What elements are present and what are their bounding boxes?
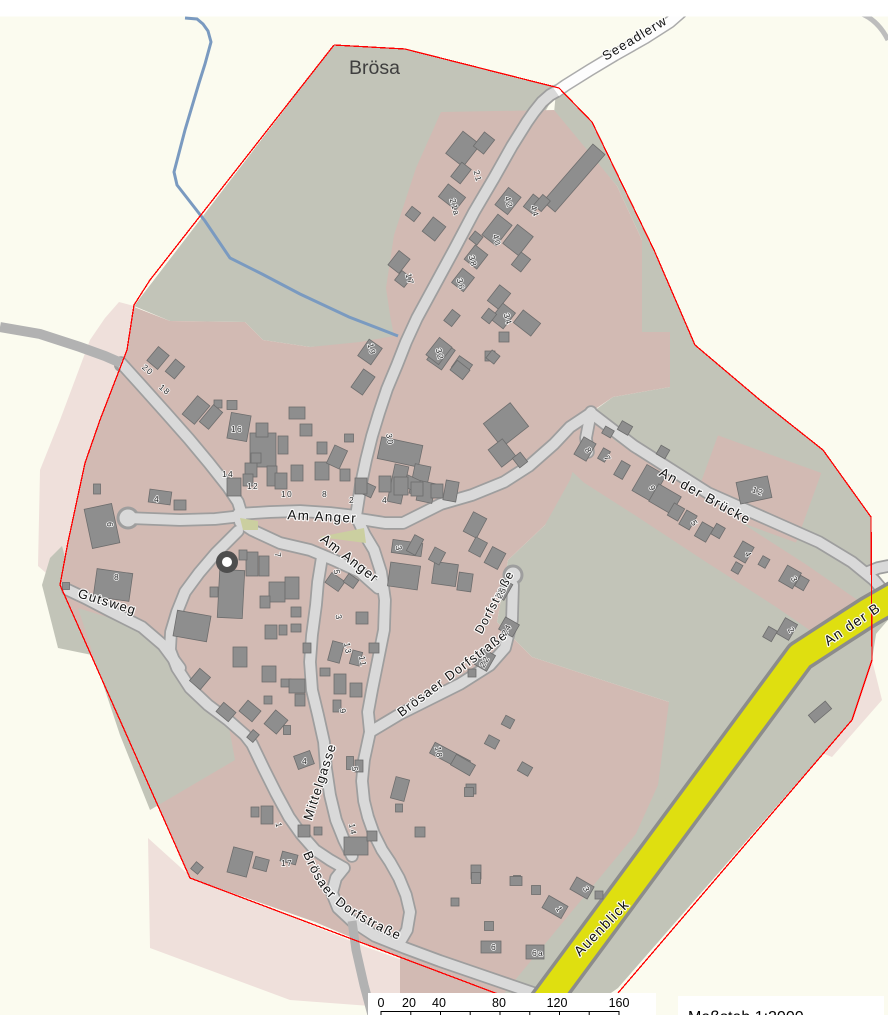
svg-text:2: 2 [349,495,355,505]
svg-text:8: 8 [114,572,120,582]
svg-text:13: 13 [342,642,354,656]
svg-text:11: 11 [357,655,369,668]
svg-text:16: 16 [231,424,243,434]
svg-text:120: 120 [547,996,568,1010]
svg-text:4: 4 [154,494,160,504]
svg-text:4: 4 [382,495,388,505]
svg-text:160: 160 [609,996,630,1010]
svg-text:6: 6 [491,942,497,952]
svg-text:17: 17 [281,858,293,868]
svg-text:8: 8 [322,489,328,499]
svg-text:Maßstab 1:2000: Maßstab 1:2000 [688,1009,804,1015]
svg-text:Brösa: Brösa [349,57,400,79]
svg-text:14: 14 [347,823,359,837]
svg-text:4: 4 [302,756,308,766]
svg-text:20: 20 [402,996,416,1010]
svg-text:10: 10 [281,489,293,499]
svg-text:40: 40 [432,996,446,1010]
svg-text:14: 14 [222,469,234,479]
svg-text:6a: 6a [532,948,544,958]
svg-text:80: 80 [492,996,506,1010]
svg-text:6: 6 [105,522,115,528]
svg-text:12: 12 [247,481,259,491]
svg-text:18: 18 [433,746,445,760]
svg-text:30: 30 [384,433,396,447]
svg-text:0: 0 [378,996,385,1010]
